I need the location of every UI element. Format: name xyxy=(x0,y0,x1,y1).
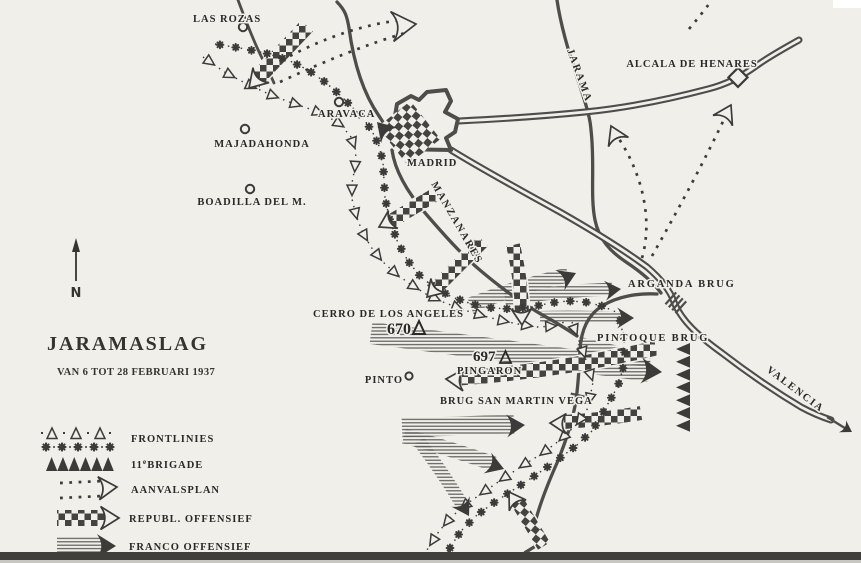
frontline-flower-icon xyxy=(557,454,564,461)
frontline-flower-icon xyxy=(544,464,551,471)
frontline-flower-icon xyxy=(517,482,524,489)
frontline-flower-icon xyxy=(321,78,328,85)
san-martin-brug-label: BRUG SAN MARTIN VEGA xyxy=(440,396,593,407)
frontline-flower-icon xyxy=(90,443,97,450)
frontline-flower-icon xyxy=(248,47,255,54)
madrid-label: MADRID xyxy=(407,158,457,169)
las-rozas-label: LAS ROZAS xyxy=(193,14,261,25)
scan-corner xyxy=(833,0,861,8)
frontline-flower-icon xyxy=(366,123,373,130)
frontline-flower-icon xyxy=(381,184,388,191)
frontline-flower-icon xyxy=(373,137,380,144)
frontline-flower-icon xyxy=(74,443,81,450)
majadahonda-marker xyxy=(241,125,249,133)
franco-offensive-band xyxy=(540,317,624,318)
frontline-flower-icon xyxy=(570,445,577,452)
aravaca-marker xyxy=(335,98,343,106)
page-bottom-edge xyxy=(0,552,861,561)
republican-offensive-band xyxy=(394,114,424,152)
map-canvas: LAS ROZAS ARAVACA MAJADAHONDA BOADILLA D… xyxy=(0,0,861,563)
frontline-flower-icon xyxy=(232,44,239,51)
pintoque-brug-label: PINTOQUE BRUG xyxy=(597,333,709,344)
frontline-flower-icon xyxy=(279,55,286,62)
boadilla-label: BOADILLA DEL M. xyxy=(197,197,306,208)
frontline-flower-icon xyxy=(416,272,423,279)
frontline-flower-icon xyxy=(488,304,495,311)
frontline-flower-icon xyxy=(608,394,615,401)
frontline-flower-icon xyxy=(294,61,301,68)
cerro-label: CERRO DE LOS ANGELES xyxy=(313,309,464,320)
frontline-flower-icon xyxy=(217,41,224,48)
arganda-brug-label: ARGANDA BRUG xyxy=(628,279,736,290)
jarama-battle-map: LAS ROZAS ARAVACA MAJADAHONDA BOADILLA D… xyxy=(0,0,861,563)
frontline-flower-icon xyxy=(472,301,479,308)
frontline-flower-icon xyxy=(592,422,599,429)
frontline-flower-icon xyxy=(447,545,454,552)
pinto-label: PINTO xyxy=(365,375,403,386)
frontline-flower-icon xyxy=(478,509,485,516)
legend-frontlines-label: FRONTLINIES xyxy=(131,434,214,445)
frontline-flower-icon xyxy=(457,296,464,303)
map-title: JARAMASLAG xyxy=(47,333,208,355)
frontline-flower-icon xyxy=(466,519,473,526)
frontline-flower-icon xyxy=(503,305,510,312)
frontline-flower-icon xyxy=(621,349,628,356)
legend-brigade-label: 11eBRIGADE xyxy=(131,457,203,471)
frontline-flower-icon xyxy=(333,88,340,95)
frontline-flower-icon xyxy=(567,298,574,305)
frontline-flower-icon xyxy=(491,499,498,506)
frontline-flower-icon xyxy=(598,303,605,310)
aravaca-label: ARAVACA xyxy=(318,109,375,120)
frontline-flower-icon xyxy=(519,305,526,312)
frontline-flower-icon xyxy=(582,434,589,441)
compass-label: N xyxy=(71,286,82,301)
frontline-flower-icon xyxy=(620,365,627,372)
frontline-flower-icon xyxy=(383,200,390,207)
frontline-flower-icon xyxy=(406,259,413,266)
legend-franco-label: FRANCO OFFENSIEF xyxy=(129,542,251,553)
frontline-flower-icon xyxy=(531,473,538,480)
frontline-flower-icon xyxy=(264,50,271,57)
frontline-flower-icon xyxy=(583,299,590,306)
frontline-flower-icon xyxy=(600,408,607,415)
map-subtitle: VAN 6 TOT 28 FEBRUARI 1937 xyxy=(57,367,215,378)
frontline-flower-icon xyxy=(535,302,542,309)
frontline-flower-icon xyxy=(308,69,315,76)
frontline-flower-icon xyxy=(42,443,49,450)
pingaron-label: PINGARON xyxy=(457,366,522,377)
frontline-flower-icon xyxy=(344,99,351,106)
frontline-flower-icon xyxy=(391,231,398,238)
legend-republ-label: REPUBL. OFFENSIEF xyxy=(129,514,253,525)
pinto-marker xyxy=(405,372,412,379)
pingaron-elevation: 697 xyxy=(473,349,496,365)
frontline-flower-icon xyxy=(615,380,622,387)
boadilla-marker xyxy=(246,185,254,193)
franco-offensive-band xyxy=(402,424,514,428)
frontline-flower-icon xyxy=(551,299,558,306)
frontline-flower-icon xyxy=(380,168,387,175)
frontline-flower-icon xyxy=(455,531,462,538)
cerro-elevation: 670 xyxy=(387,321,411,338)
frontline-flower-icon xyxy=(398,245,405,252)
majadahonda-label: MAJADAHONDA xyxy=(214,139,310,150)
alcala-label: ALCALA DE HENARES xyxy=(626,59,757,70)
legend-aanvalsplan-label: AANVALSPLAN xyxy=(131,485,220,496)
frontline-flower-icon xyxy=(378,153,385,160)
frontline-flower-icon xyxy=(106,443,113,450)
frontline-flower-icon xyxy=(58,443,65,450)
